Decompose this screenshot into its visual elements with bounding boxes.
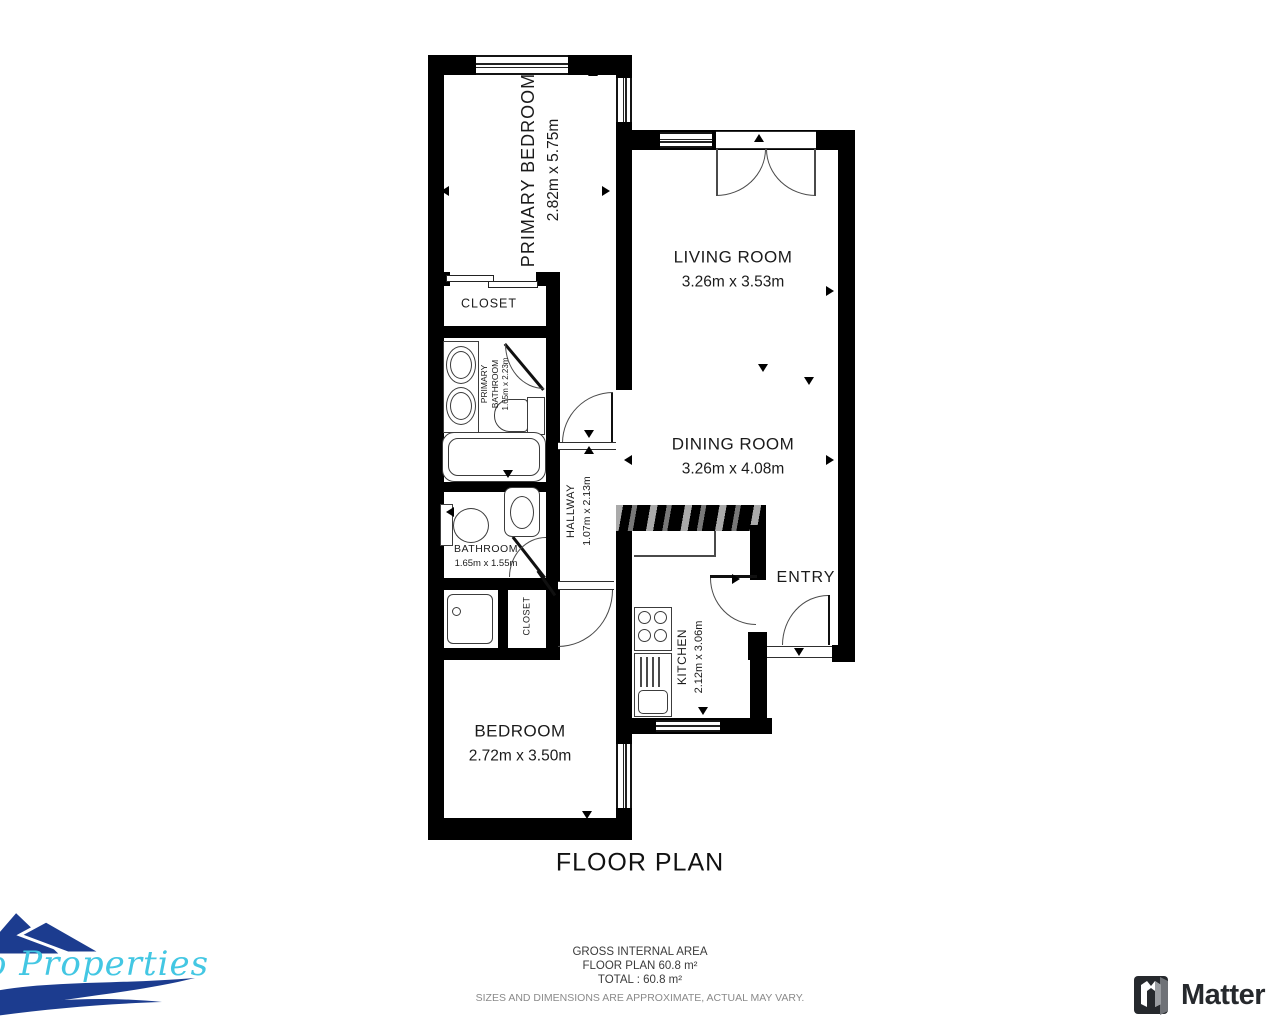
- dimension-arrow: [441, 186, 449, 196]
- wall: [498, 588, 508, 650]
- window-pane-line: [623, 78, 625, 122]
- window-pane-line: [625, 744, 627, 808]
- vanity-sink-basin: [450, 351, 472, 379]
- room-label-kitchen: KITCHEN 2.12m x 3.06m: [673, 621, 708, 694]
- room-dims: 1.65m x 1.55m: [454, 557, 518, 570]
- wall-with-watermark: [616, 505, 766, 531]
- dimension-arrow: [758, 364, 768, 372]
- closet-door-panel: [488, 281, 538, 288]
- room-label-living-room: LIVING ROOM 3.26m x 3.53m: [674, 245, 793, 294]
- dimension-arrow: [804, 377, 814, 385]
- shower: [447, 594, 493, 644]
- room-name: ENTRY: [777, 566, 836, 590]
- room-label-primary-bedroom: PRIMARY BEDROOM 2.82m x 5.75m: [515, 73, 565, 267]
- dimension-arrow: [622, 286, 630, 296]
- kitchen-sink-basin: [638, 690, 668, 714]
- room-dims: 1.07m x 2.13m: [579, 476, 595, 545]
- dimension-arrow: [754, 134, 764, 142]
- room-label-bathroom: BATHROOM 1.65m x 1.55m: [454, 542, 518, 570]
- room-name: CLOSET: [461, 295, 517, 314]
- dimension-arrow: [503, 328, 513, 336]
- room-name: PRIMARY BATHROOM: [479, 354, 501, 414]
- room-name: BATHROOM: [454, 542, 518, 557]
- room-dims: 3.26m x 3.53m: [674, 270, 793, 293]
- window-pane-line: [623, 744, 625, 808]
- window: [660, 132, 712, 148]
- drainboard-line: [640, 657, 642, 687]
- dimension-arrow: [588, 68, 598, 76]
- window-pane-line: [625, 78, 627, 122]
- wall: [838, 130, 855, 662]
- room-name: DINING ROOM: [672, 432, 795, 458]
- dimension-arrow: [732, 574, 740, 584]
- room-label-hallway: HALLWAY 1.07m x 2.13m: [563, 476, 595, 545]
- room-name: HALLWAY: [563, 476, 580, 545]
- window: [616, 78, 632, 122]
- wall: [428, 648, 560, 660]
- wall: [616, 150, 632, 390]
- room-label-primary-bathroom: PRIMARY BATHROOM 1.65m x 2.23m: [479, 354, 511, 414]
- wall: [616, 522, 632, 744]
- dimension-arrow: [602, 186, 610, 196]
- dimension-arrow: [826, 455, 834, 465]
- wall: [750, 658, 767, 720]
- room-dims: 2.82m x 5.75m: [542, 73, 565, 267]
- shower-drain: [452, 607, 461, 616]
- window-pane-line: [476, 67, 568, 69]
- room-dims: 1.65m x 2.23m: [501, 354, 511, 414]
- dimension-arrow: [584, 430, 594, 438]
- agency-logo-wave-icon: [0, 976, 200, 1022]
- door-swing-arc: [710, 578, 756, 625]
- room-dims: 3.26m x 4.08m: [672, 457, 795, 480]
- stove-burner: [638, 629, 651, 642]
- stove-burner: [638, 611, 651, 624]
- room-name: KITCHEN: [673, 621, 691, 694]
- dimension-arrow: [462, 579, 472, 587]
- counter-line: [634, 555, 716, 557]
- room-label-bedroom: BEDROOM 2.72m x 3.50m: [469, 719, 572, 768]
- room-dims: 2.12m x 3.06m: [691, 621, 708, 694]
- matterport-logo-icon: [1133, 974, 1171, 1016]
- room-label-closet: CLOSET: [461, 295, 517, 314]
- door-swing-arc: [766, 149, 816, 196]
- window-pane-line: [660, 141, 712, 143]
- window-pane-line: [656, 725, 720, 727]
- vanity-sink-basin: [450, 392, 472, 420]
- wall: [428, 578, 558, 590]
- dimension-arrow: [698, 707, 708, 715]
- dimension-arrow: [503, 470, 513, 478]
- door-swing-arc: [558, 590, 613, 647]
- dimension-arrow: [582, 811, 592, 819]
- door-swing-arc: [782, 595, 828, 645]
- room-name: CLOSET: [520, 596, 534, 635]
- matterport-wordmark: Matter: [1181, 979, 1265, 1012]
- dimension-arrow: [624, 455, 632, 465]
- stove-burner: [654, 629, 667, 642]
- counter-line: [714, 531, 716, 557]
- drainboard-line: [652, 657, 654, 687]
- wall: [750, 525, 766, 580]
- closet-door-panel: [446, 275, 494, 282]
- sink-basin: [510, 496, 534, 529]
- bathtub-inner: [448, 438, 540, 476]
- door-threshold: [558, 581, 614, 590]
- stove-burner: [654, 611, 667, 624]
- drainboard-line: [658, 657, 660, 687]
- window: [656, 720, 720, 732]
- drainboard-line: [646, 657, 648, 687]
- wall: [832, 645, 855, 662]
- dimension-arrow: [584, 446, 594, 454]
- room-name: LIVING ROOM: [674, 245, 793, 271]
- room-label-dining-room: DINING ROOM 3.26m x 4.08m: [672, 432, 795, 481]
- door-swing-arc: [716, 149, 766, 196]
- wall: [748, 632, 767, 660]
- room-name: PRIMARY BEDROOM: [515, 73, 542, 267]
- wall: [428, 326, 548, 338]
- room-dims: 2.72m x 3.50m: [469, 744, 572, 767]
- door-leaf: [828, 595, 830, 645]
- page-title: FLOOR PLAN: [556, 849, 724, 878]
- floor-plan-page: PRIMARY BEDROOM 2.82m x 5.75m LIVING ROO…: [0, 0, 1280, 1024]
- room-label-closet-small: CLOSET: [520, 596, 534, 635]
- dimension-arrow: [826, 286, 834, 296]
- balcony-door-opening: [716, 131, 816, 149]
- room-name: BEDROOM: [469, 719, 572, 745]
- window: [616, 744, 632, 808]
- room-label-entry: ENTRY: [777, 566, 836, 590]
- wall: [428, 818, 632, 840]
- window-pane-line: [476, 63, 568, 65]
- dimension-arrow: [446, 507, 454, 517]
- window-pane-line: [660, 139, 712, 141]
- toilet-tank: [527, 397, 545, 435]
- dimension-arrow: [794, 648, 804, 656]
- toilet-bowl: [453, 508, 489, 543]
